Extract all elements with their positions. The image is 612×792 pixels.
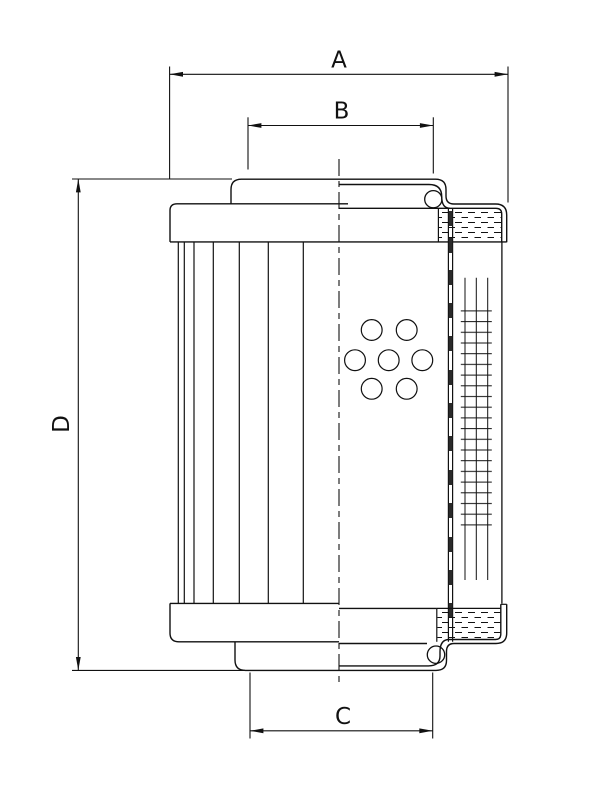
top-cap-top-edge xyxy=(170,204,348,242)
bottom-gasket-hatch xyxy=(437,612,500,639)
dimension-d xyxy=(72,179,245,670)
hole xyxy=(378,350,399,371)
core-tube-perforation-hatch xyxy=(449,211,453,618)
mesh-cross-wires xyxy=(461,302,492,535)
dimension-b xyxy=(248,117,433,173)
bottom-cap-left-outline xyxy=(170,603,339,641)
hole xyxy=(412,350,433,371)
dimension-d-label: D xyxy=(49,415,75,433)
arrowhead-left-icon xyxy=(250,728,263,733)
arrowhead-left-icon xyxy=(170,72,183,77)
hole xyxy=(345,350,366,371)
drawing-sheet: A B C D xyxy=(0,0,612,792)
arrowhead-right-icon xyxy=(419,728,432,733)
bypass-holes xyxy=(345,320,433,400)
dimension-a-label: A xyxy=(331,48,347,74)
pleats xyxy=(178,242,303,603)
hole xyxy=(361,378,382,399)
arrowhead-up-icon xyxy=(76,179,81,192)
wire-mesh xyxy=(461,278,492,580)
arrowhead-right-icon xyxy=(495,72,508,77)
arrowhead-right-icon xyxy=(420,123,433,128)
arrowhead-left-icon xyxy=(248,123,261,128)
dimension-c-label: C xyxy=(335,704,351,730)
top-seal-ball xyxy=(425,191,442,208)
bottom-seal-ball xyxy=(427,646,444,663)
hole xyxy=(396,320,417,341)
top-collar-inner-wall xyxy=(339,185,450,209)
dimension-b-label: B xyxy=(334,99,350,125)
hole xyxy=(361,320,382,341)
hole xyxy=(396,378,417,399)
filter-element-drawing: A B C D xyxy=(0,0,612,792)
arrowhead-down-icon xyxy=(76,657,81,670)
core-tube xyxy=(448,209,452,642)
